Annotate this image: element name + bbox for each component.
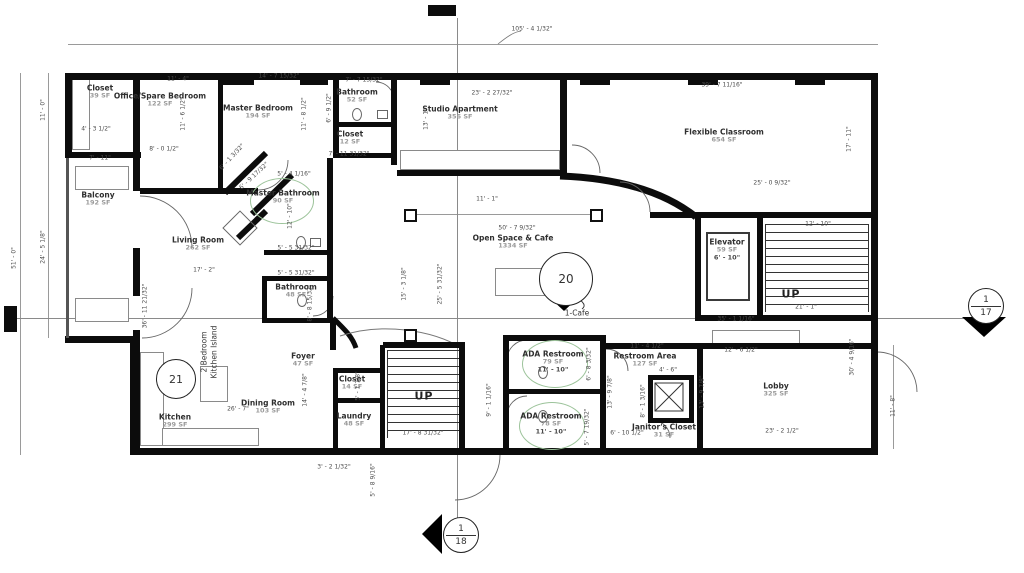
leader-line (498, 31, 521, 44)
wall (648, 375, 694, 380)
casework (400, 150, 560, 170)
dimension-label: 36' - 11 21/32" (142, 284, 149, 329)
floor-sink (655, 383, 683, 411)
dimension-label: 17' - 2" (193, 267, 215, 274)
wall (459, 342, 465, 448)
wall (330, 318, 336, 350)
room-label: Open Space & Cafe1334 SF (473, 234, 554, 251)
wall (650, 212, 877, 218)
dimension-label: 4' - 6" (659, 367, 677, 374)
wall (397, 170, 567, 176)
curved-wall (560, 176, 696, 217)
dimension-label: 51' - 0" (11, 247, 18, 269)
wall (560, 73, 567, 178)
dimension-label: 5' - 5 31/32" (277, 270, 314, 277)
kitchen-island-note: 2 Bedroom Kitchen Island (199, 326, 219, 379)
wall (336, 122, 397, 127)
dimension-label: 5' - 1 7/8" (355, 371, 362, 401)
wall (133, 248, 140, 296)
room-area: 47 SF (291, 361, 315, 369)
structural-column (590, 209, 603, 222)
dimension-label: 8' - 0 1/2" (149, 146, 179, 153)
sink-fixture (377, 110, 388, 119)
room-label: Balcony192 SF (81, 191, 114, 208)
section-sheet: 1 (458, 524, 464, 534)
dimension-label: 11' - 8 1/2" (301, 97, 308, 130)
section-detail: 18 (455, 537, 466, 547)
room-label: Studio Apartment356 SF (422, 105, 497, 122)
wall (218, 80, 223, 192)
dimension-label: 5' - 7 19/32" (584, 408, 591, 445)
wall (695, 215, 701, 321)
dimension-label: 7' - 7 15/32" (345, 77, 382, 84)
dimension-label: 8' - 1 3/16" (640, 384, 647, 417)
wall (380, 345, 385, 448)
room-area: 262 SF (172, 245, 224, 253)
room-area: 12 SF (337, 139, 363, 147)
dimension-label: 9' - 1 1/16" (486, 383, 493, 416)
wall (648, 375, 653, 423)
wall (264, 276, 330, 281)
dimension-label: 11' - 1" (476, 196, 498, 203)
section-divider (971, 306, 1001, 307)
wall (4, 306, 17, 332)
dimension-label: 24' - 5 1/8" (40, 230, 47, 263)
dimension-label: 13' - 9 7/8" (607, 375, 614, 408)
dimension-label: 12' - 6 1/2" (724, 347, 757, 354)
structural-column (404, 209, 417, 222)
dimension-label: 11' - 6 1/2" (180, 97, 187, 130)
dimension-label: 23' - 2 27/32" (471, 90, 512, 97)
section-marker-1-18[interactable]: 1 18 (443, 517, 479, 553)
cafe-callout-number: 20 (558, 272, 573, 286)
wall (580, 80, 610, 85)
balcony-window-wall (66, 158, 69, 338)
wall (327, 158, 333, 323)
room-label: Master Bathroom90 SF (246, 189, 320, 206)
dimension-label: 7' - 11 31/32" (328, 151, 369, 158)
wall (383, 342, 465, 348)
dimension-label: 12' - 10" (287, 203, 294, 229)
dimension-label: 13' - 1" (423, 108, 430, 130)
dimension-line (20, 73, 21, 455)
room-label: Living Room262 SF (172, 236, 224, 253)
room-dimension: 11' - 10" (522, 367, 583, 375)
dimension-label: 5' - 4 1/16" (277, 171, 310, 178)
room-area: 52 SF (336, 97, 378, 105)
dimension-label: 8' - 8 15/32" (307, 284, 314, 321)
dimension-label: 105' - 4 1/32" (511, 26, 552, 33)
dimension-line (409, 214, 595, 215)
dimension-label: 11' - 0" (40, 99, 47, 121)
wall (133, 330, 140, 448)
room-area: 122 SF (114, 101, 206, 109)
room-label: Dining Room103 SF (241, 399, 295, 416)
wall (757, 215, 763, 321)
room-dimension: 6' - 10" (709, 255, 744, 263)
dimension-label: 30' - 4 9/16" (849, 338, 856, 375)
room-label: Bathroom52 SF (336, 88, 378, 105)
shower (223, 211, 257, 245)
room-area: 1334 SF (473, 243, 554, 251)
kitchen-island-note-line1: 2 Bedroom (199, 326, 209, 379)
wall (65, 336, 137, 343)
room-area: 192 SF (81, 200, 114, 208)
wall (420, 80, 450, 85)
room-label: Office/Spare Bedroom122 SF (114, 92, 206, 109)
room-label: Closet12 SF (337, 130, 363, 147)
wall (300, 80, 328, 85)
floor-plan: 20 1-Cafe 21 2 Bedroom Kitchen Island 1 … (0, 0, 1024, 573)
dimension-label: 25' - 0 9/32" (753, 180, 790, 187)
section-marker-1-17[interactable]: 1 17 (968, 288, 1004, 324)
curved-wall (333, 318, 356, 348)
dimension-label: 21' - 1" (795, 304, 817, 311)
casework (162, 428, 259, 446)
wall (871, 73, 878, 455)
room-label: Closet39 SF (87, 84, 113, 101)
room-label: ADA Restroom78 SF11' - 10" (520, 412, 581, 437)
dimension-label: 11' - 4" (167, 76, 189, 83)
room-dimension: 11' - 10" (520, 429, 581, 437)
dimension-label: 14' - 7 15/32" (258, 73, 299, 80)
dimension-label: 5' - 5 31/32" (277, 245, 314, 252)
room-area: 356 SF (422, 114, 497, 122)
wall (264, 318, 330, 323)
dimension-label: 11' - 8" (890, 395, 897, 417)
dimension-label: 50' - 7 9/32" (498, 225, 535, 232)
dimension-label: 6' - 9 1/2" (326, 93, 333, 123)
kitchen-callout-number: 21 (169, 373, 183, 386)
dimension-label: 26' - 7" (227, 406, 249, 413)
room-label: Kitchen299 SF (159, 413, 191, 430)
kitchen-island-note-line2: Kitchen Island (209, 326, 219, 379)
dimension-label: 11' - 4 1/2" (630, 343, 663, 350)
room-label: Lobby325 SF (763, 382, 789, 399)
dimension-label: 6' - 8 3/32" (586, 347, 593, 380)
wall (503, 389, 603, 394)
room-label: Flexible Classroom654 SF (684, 128, 764, 145)
dimension-label: 7' - 11" (89, 155, 111, 162)
dimension-label: 12' - 10" (805, 221, 831, 228)
dimension-label: 35' - 1 1/16" (717, 316, 754, 323)
room-area: 39 SF (87, 93, 113, 101)
wall (689, 375, 694, 423)
dimension-label: 17' - 11" (846, 126, 853, 152)
room-area: 325 SF (763, 391, 789, 399)
wall (795, 80, 825, 85)
dimension-line (68, 44, 878, 45)
dimension-label: 13' - 9 7/8" (699, 375, 706, 408)
section-arrow-icon (422, 514, 442, 554)
room-area: 48 SF (337, 421, 371, 429)
wall (65, 73, 72, 158)
casework (75, 166, 129, 190)
wall (333, 368, 338, 448)
section-cut-line (457, 18, 458, 518)
room-area: 654 SF (684, 137, 764, 145)
wall (600, 335, 606, 448)
room-label: Elevator59 SF6' - 10" (709, 238, 744, 263)
room-area: 299 SF (159, 422, 191, 430)
wall (130, 448, 878, 455)
structural-column (404, 329, 417, 342)
dimension-label: 3' - 2 1/32" (317, 464, 350, 471)
section-divider (446, 535, 476, 536)
dimension-label: 5' - 8 9/16" (370, 463, 377, 496)
dimension-label: 4' - 3 1/2" (81, 126, 111, 133)
toilet-fixture (352, 108, 362, 121)
dimension-label: 14' - 4 7/8" (302, 373, 309, 406)
room-label: Laundry48 SF (337, 412, 371, 429)
section-detail: 17 (980, 308, 991, 318)
dimension-line (48, 73, 49, 338)
section-sheet: 1 (983, 295, 989, 305)
room-label: Master Bedroom194 SF (223, 104, 293, 121)
dimension-label: 23' - 2 1/2" (765, 428, 798, 435)
wall (222, 80, 254, 85)
wall (428, 5, 456, 16)
wall (262, 276, 267, 323)
dimension-label: 6' - 10 1/2" (610, 430, 643, 437)
dimension-label: 15' - 3 1/8" (401, 267, 408, 300)
stair-up-label-center: UP (415, 390, 434, 403)
room-area: 90 SF (246, 198, 320, 206)
cafe-callout-label: 1-Cafe (565, 309, 590, 318)
wall (391, 73, 397, 165)
room-area: 194 SF (223, 113, 293, 121)
room-area: 103 SF (241, 408, 295, 416)
room-label: Foyer47 SF (291, 352, 315, 369)
dimension-label: 17' - 8 31/32" (402, 430, 443, 437)
kitchen-callout-marker[interactable]: 21 (156, 359, 196, 399)
dimension-label: 39' - 7 11/16" (701, 82, 742, 89)
room-label: ADA Restroom79 SF11' - 10" (522, 350, 583, 375)
dimension-label: 25' - 5 31/32" (437, 263, 444, 304)
casework (75, 298, 129, 322)
stair-up-label-right: UP (782, 288, 801, 301)
cafe-callout-marker[interactable]: 20 (539, 252, 593, 306)
